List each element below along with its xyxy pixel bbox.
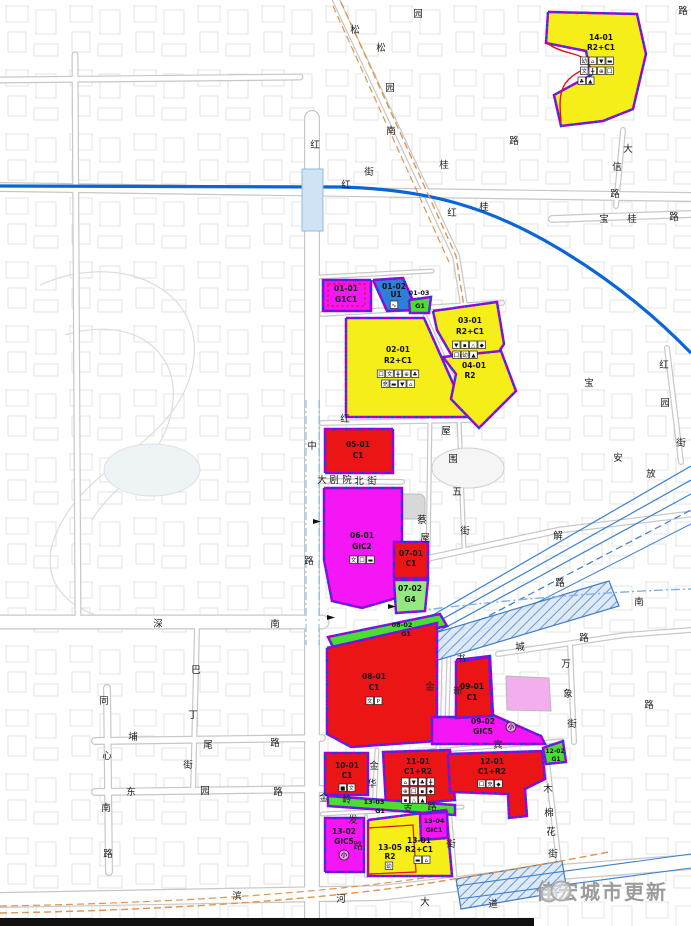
parcel-label-01-02: U1 bbox=[390, 290, 401, 299]
street-label: 路 bbox=[579, 632, 589, 644]
street-label: 路 bbox=[304, 555, 314, 567]
facility-icon-glyph: 囗 bbox=[479, 781, 485, 788]
street-label: 尾 bbox=[203, 740, 213, 751]
parcel-label-13-05: R2 bbox=[385, 852, 396, 861]
parcel-label-12-01: 12-01 bbox=[480, 757, 504, 766]
street-label: 大 bbox=[420, 896, 430, 908]
street-label: 城 bbox=[515, 642, 525, 653]
street-label: 东 bbox=[126, 786, 136, 798]
parcel-label-13-05: 13-05 bbox=[378, 843, 402, 852]
street-label: 桂 bbox=[479, 201, 489, 213]
parcel-label-03-01: R2+C1 bbox=[456, 327, 484, 336]
metro-station-box bbox=[302, 169, 323, 231]
street-label: 同 bbox=[99, 696, 109, 707]
facility-icon-glyph: 文 bbox=[387, 370, 393, 378]
street-label: 路 bbox=[669, 211, 679, 223]
planning-map-canvas: 14-01R2+C1幼⌂▼▬文╋⊕囗♣▲02-01R2+C1囗文╋⊕♣充▬▼⌂0… bbox=[0, 0, 691, 926]
street-label: 发 bbox=[348, 814, 358, 826]
parcel-label-04-01: 04-01 bbox=[462, 361, 486, 370]
street-label: 园 bbox=[200, 786, 210, 797]
road-surface bbox=[107, 688, 109, 872]
street-label: 松 bbox=[376, 42, 386, 54]
street-label: 园 bbox=[413, 9, 423, 20]
street-label: 红 bbox=[659, 359, 669, 371]
street-label: 路 bbox=[273, 786, 283, 798]
parcel-label-13-03: 13-03 bbox=[364, 798, 385, 806]
facility-icon-glyph: 囗 bbox=[411, 788, 417, 795]
parcel-label-07-01: 07-01 bbox=[399, 549, 423, 558]
street-label: 心 bbox=[102, 751, 112, 762]
parcel-label-09-02: 小 bbox=[507, 723, 514, 731]
street-label: 金 bbox=[369, 760, 379, 772]
street-label: 街 bbox=[676, 437, 686, 449]
parcel-label-01-01: G1C1 bbox=[335, 295, 357, 304]
parcel-label-07-01: C1 bbox=[406, 559, 417, 568]
parcel-label-09-01: 09-01 bbox=[460, 682, 484, 691]
street-label: 金 bbox=[425, 681, 435, 693]
parcel-label-12-01: C1+R2 bbox=[478, 767, 506, 776]
facility-icon-glyph: ♣ bbox=[413, 372, 418, 378]
facility-icon-glyph: 文 bbox=[351, 556, 357, 564]
street-label: 园 bbox=[385, 83, 395, 94]
facility-icon-glyph: ▬ bbox=[607, 59, 612, 65]
facility-icon-glyph: 文 bbox=[367, 697, 373, 705]
facility-icon-glyph: 幼 bbox=[386, 862, 392, 870]
street-label: 棉 bbox=[544, 807, 554, 819]
facility-icon-glyph: ▬ bbox=[415, 858, 420, 864]
parcel-label-08-01: C1 bbox=[369, 683, 380, 692]
street-label: 岭 bbox=[342, 794, 352, 806]
parcel-label-07-02: 07-02 bbox=[398, 584, 422, 593]
street-label: 滨 bbox=[232, 890, 242, 902]
street-label: 南 bbox=[634, 596, 644, 608]
street-label: 路 bbox=[610, 188, 620, 200]
parcel-label-01-01: 01-01 bbox=[334, 284, 358, 293]
facility-icon-glyph: 文 bbox=[581, 67, 587, 75]
parcel-label-06-01: 06-01 bbox=[350, 531, 374, 540]
facility-icon-glyph: 幼 bbox=[462, 351, 468, 359]
street-label: 南 bbox=[386, 125, 396, 137]
parcel-label-12-02: G1 bbox=[551, 756, 560, 763]
facility-icon-glyph: ╋ bbox=[428, 778, 433, 786]
street-label: 大 bbox=[623, 143, 633, 155]
parcel-label-03-01: 03-01 bbox=[458, 316, 482, 325]
street-label: 路 bbox=[353, 840, 363, 852]
facility-icon-glyph: ⌂ bbox=[404, 780, 408, 786]
street-label: 书 bbox=[456, 654, 466, 665]
facility-icon-glyph: 囗 bbox=[454, 352, 460, 359]
street-label: 大 bbox=[317, 474, 327, 486]
parcel-label-14-01: R2+C1 bbox=[587, 43, 615, 52]
street-label: 木 bbox=[543, 783, 553, 795]
street-label: 路 bbox=[427, 801, 437, 813]
facility-icon-glyph: ♣ bbox=[579, 79, 584, 85]
parcel-label-08-02: 08-02 bbox=[392, 621, 413, 629]
street-label: 象 bbox=[563, 688, 573, 700]
road-surface bbox=[0, 77, 300, 80]
street-label: 路 bbox=[678, 5, 688, 17]
parcel-label-04-01: R2 bbox=[465, 371, 476, 380]
parcel-label-13-04: 13-04 bbox=[424, 817, 445, 825]
parcel-label-13-05: 13-01 bbox=[407, 836, 431, 845]
street-label: 万 bbox=[561, 659, 571, 670]
street-label: 宝 bbox=[584, 377, 594, 389]
facility-icon-glyph: 囗 bbox=[607, 68, 613, 75]
parcel-label-13-04: GIC1 bbox=[425, 826, 443, 834]
street-label: 园 bbox=[660, 398, 670, 409]
parcel-label-13-02: 13-02 bbox=[332, 827, 356, 836]
street-label: 围 bbox=[448, 454, 458, 465]
parcel-label-13-05: R2+C1 bbox=[405, 845, 433, 854]
street-label: 支 bbox=[403, 803, 413, 815]
facility-icon-glyph: 充 bbox=[382, 380, 388, 388]
parcel-label-10-01: C1 bbox=[342, 771, 353, 780]
parcel-label-09-02: GIC5 bbox=[473, 727, 493, 736]
street-label: 街 bbox=[183, 759, 193, 771]
facility-icon-glyph: ▪ bbox=[463, 343, 467, 349]
parcel-label-01-03: G1 bbox=[415, 302, 425, 310]
facility-icon-glyph: ⌂ bbox=[425, 858, 429, 864]
street-label: 金 bbox=[319, 792, 329, 804]
street-label: 屋 bbox=[420, 533, 430, 544]
street-label: 红 bbox=[447, 207, 457, 219]
street-label: 安 bbox=[613, 452, 623, 464]
street-label: 街 bbox=[548, 848, 558, 860]
facility-icon-glyph: ⊕ bbox=[403, 789, 408, 795]
street-label: 深 bbox=[153, 619, 163, 630]
facility-icon-glyph: ∿ bbox=[392, 303, 397, 309]
street-label: 松 bbox=[350, 24, 360, 36]
facility-icon-glyph: 充 bbox=[487, 780, 493, 788]
street-label: 屋 bbox=[441, 426, 451, 437]
street-label: 路 bbox=[644, 699, 654, 711]
parcel-label-09-02: 09-02 bbox=[471, 717, 495, 726]
parcel-label-02-01: 02-01 bbox=[386, 345, 410, 354]
facility-icon-glyph: ╋ bbox=[590, 67, 595, 75]
street-label: 桂 bbox=[627, 213, 637, 225]
street-label: 宝 bbox=[599, 213, 609, 225]
park-pond bbox=[104, 444, 200, 496]
street-label: 五 bbox=[452, 487, 462, 498]
road-surface bbox=[75, 55, 78, 620]
facility-icon-glyph: ▬ bbox=[391, 382, 396, 388]
street-label: 街 bbox=[367, 475, 377, 487]
parcel-label-07-02: G4 bbox=[404, 595, 415, 604]
street-label: 红 bbox=[310, 139, 320, 151]
street-label: 放 bbox=[646, 468, 656, 480]
parcel-label-01-03: 01-03 bbox=[409, 289, 430, 297]
street-label: 院 bbox=[342, 474, 352, 486]
street-label: 路 bbox=[103, 848, 113, 860]
street-label: 河 bbox=[336, 893, 346, 905]
planning-map-svg: 14-01R2+C1幼⌂▼▬文╋⊕囗♣▲02-01R2+C1囗文╋⊕♣充▬▼⌂0… bbox=[0, 0, 691, 926]
facility-icon-glyph: 文 bbox=[348, 784, 354, 792]
parcel-label-09-01: C1 bbox=[467, 693, 478, 702]
facility-icon-glyph: ■ bbox=[340, 786, 345, 792]
street-label: 解 bbox=[553, 530, 563, 542]
parcel-label-06-01: GIC2 bbox=[352, 542, 372, 551]
street-label: 北 bbox=[354, 476, 364, 487]
street-label: 丁 bbox=[188, 710, 198, 721]
facility-icon-glyph: ⊕ bbox=[599, 69, 604, 75]
street-label: 南 bbox=[101, 802, 111, 814]
parcel-label-11-01: 11-01 bbox=[406, 757, 430, 766]
parcel-label-13-03: G1 bbox=[375, 807, 385, 815]
facility-icon-glyph: ♣ bbox=[420, 780, 425, 786]
parcel-label-05-01: C1 bbox=[353, 451, 364, 460]
street-label: 路 bbox=[270, 737, 280, 749]
street-label: 街 bbox=[364, 166, 374, 178]
street-label: 桂 bbox=[439, 159, 449, 171]
street-label: 华 bbox=[367, 778, 377, 790]
parcel-label-14-01: 14-01 bbox=[589, 33, 613, 42]
parcel-label-12-02: 12-02 bbox=[545, 748, 564, 755]
street-label: 街 bbox=[460, 525, 470, 537]
parcel-label-10-01: 10-01 bbox=[335, 761, 359, 770]
street-label: 埔 bbox=[128, 731, 138, 743]
facility-icon-glyph: ▬ bbox=[368, 558, 373, 564]
facility-icon-glyph: ⌂ bbox=[591, 59, 595, 65]
facility-icon-glyph: ⌂ bbox=[409, 382, 413, 388]
street-label: 花 bbox=[546, 826, 556, 838]
facility-icon-glyph: 囗 bbox=[359, 557, 365, 564]
street-label: 南 bbox=[270, 618, 280, 630]
parcel-label-13-02: GIC5 bbox=[334, 837, 354, 846]
street-label: 剧 bbox=[329, 475, 339, 486]
parcel-label-08-02: G1 bbox=[401, 630, 411, 638]
facility-icon-glyph: ⊕ bbox=[404, 372, 409, 378]
street-label: 中 bbox=[307, 440, 317, 452]
parcel-label-02-01: R2+C1 bbox=[384, 356, 412, 365]
facility-icon-glyph: ▪ bbox=[420, 789, 424, 795]
street-label: 蔡 bbox=[417, 514, 427, 526]
facility-icon-glyph: ╋ bbox=[395, 370, 400, 378]
street-label: 红 bbox=[341, 179, 351, 191]
parcel-label-11-01: C1+R2 bbox=[404, 767, 432, 776]
parcel-label-13-02: 小 bbox=[340, 851, 347, 859]
street-label: 街 bbox=[446, 838, 456, 850]
street-label: 红 bbox=[340, 413, 350, 425]
facility-icon-glyph: ▪ bbox=[404, 798, 408, 804]
street-label: 宾 bbox=[493, 739, 503, 751]
frame-bar bbox=[0, 918, 534, 926]
street-label: 路 bbox=[509, 135, 519, 147]
street-label: 路 bbox=[555, 577, 565, 589]
street-label: 道 bbox=[488, 898, 498, 910]
parcel-label-05-01: 05-01 bbox=[346, 440, 370, 449]
street-label: 新 bbox=[453, 685, 463, 697]
street-label: 信 bbox=[612, 161, 622, 173]
parcel-label-08-01: 08-01 bbox=[362, 672, 386, 681]
street-label: 街 bbox=[567, 718, 577, 730]
street-label: 巴 bbox=[191, 665, 201, 676]
facility-icon-glyph: 囗 bbox=[378, 371, 384, 378]
building-footprint bbox=[432, 448, 504, 488]
facility-icon-glyph: 幼 bbox=[581, 57, 587, 65]
parcel-pink bbox=[506, 676, 551, 711]
